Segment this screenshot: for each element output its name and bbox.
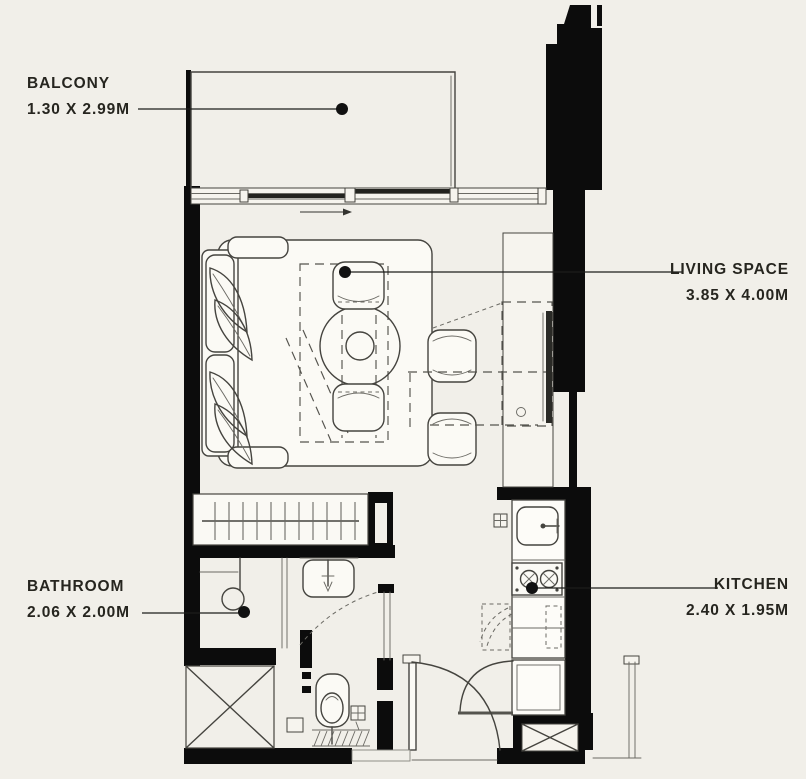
arrow-head <box>343 209 352 216</box>
door-opening-slit <box>375 503 387 543</box>
balcony-label-size: 1.30 X 2.99M <box>27 97 130 123</box>
balcony-label-title: BALCONY <box>27 71 130 97</box>
kitchen-label-title: KITCHEN <box>686 572 789 598</box>
shower-head <box>222 588 244 610</box>
threshold <box>352 750 410 761</box>
living-space-label-size: 3.85 X 4.00M <box>670 283 789 309</box>
balcony <box>191 72 455 188</box>
side-chair-2 <box>428 413 476 465</box>
living-space-label-title: LIVING SPACE <box>670 257 789 283</box>
wall-tower-top-right <box>546 5 602 190</box>
wall-left <box>184 186 200 666</box>
living-leader-dot <box>339 266 351 278</box>
kitchen-leader-dot <box>526 582 538 594</box>
bed-bolster-top <box>228 237 288 258</box>
wall-wc-right <box>377 658 393 750</box>
entrance-door <box>352 655 500 761</box>
side-chair-1 <box>428 330 476 382</box>
entrance-door-leaf <box>409 660 416 750</box>
balcony-label: BALCONY 1.30 X 2.99M <box>27 71 130 123</box>
balcony-outline <box>191 72 455 188</box>
wall-tower-sliver <box>597 5 602 26</box>
wall-balcony-left <box>186 70 191 188</box>
washbasin <box>300 558 358 597</box>
sliding-panel-1 <box>247 194 347 198</box>
bathroom-label: BATHROOM 2.06 X 2.00M <box>27 574 130 626</box>
tv-panel <box>546 311 552 423</box>
dining-chair-bottom <box>333 384 384 431</box>
wall-right-thin-bar <box>569 392 577 490</box>
wall-right-kitchen <box>565 490 591 725</box>
bed-bolster-bottom <box>228 447 288 468</box>
wardrobe-box <box>193 494 368 545</box>
sliding-panel-2 <box>352 189 453 193</box>
entrance-door-swing <box>412 662 500 750</box>
wall-wc-left <box>300 630 312 668</box>
balcony-leader-dot <box>336 103 348 115</box>
shaft-right <box>522 724 578 751</box>
wall-wardrobe-bathroom <box>190 545 395 558</box>
kitchen-label: KITCHEN 2.40 X 1.95M <box>686 572 789 624</box>
bathroom-label-size: 2.06 X 2.00M <box>27 600 130 626</box>
bathroom-leader-dot <box>238 606 250 618</box>
wall-right-upper <box>553 186 585 392</box>
wall-kitchen-divider <box>497 487 591 500</box>
wall-outlet-symbol-kitchen <box>494 514 507 527</box>
kitchen-label-size: 2.40 X 1.95M <box>686 598 789 624</box>
balcony-sliding-door <box>191 188 546 216</box>
corridor-door <box>593 656 641 758</box>
shaft-left <box>186 666 274 748</box>
appliance-dashed <box>482 604 510 650</box>
toilet <box>316 674 349 744</box>
wall-outlet-symbol-wc <box>351 706 365 730</box>
wall-bath-door-block <box>378 584 394 593</box>
bathroom-label-title: BATHROOM <box>27 574 130 600</box>
kitchen-fixtures <box>458 500 565 715</box>
floor-plan-page: { "canvas": { "background": "#f1efe9", "… <box>0 0 806 779</box>
wall-bottom-left <box>184 748 352 764</box>
bathroom-bin <box>287 718 303 732</box>
counter-strip <box>503 233 553 487</box>
wardrobe <box>193 494 368 545</box>
floor-hatch <box>312 730 370 746</box>
living-space-label: LIVING SPACE 3.85 X 4.00M <box>670 257 789 309</box>
wall-shower-band <box>184 648 276 665</box>
